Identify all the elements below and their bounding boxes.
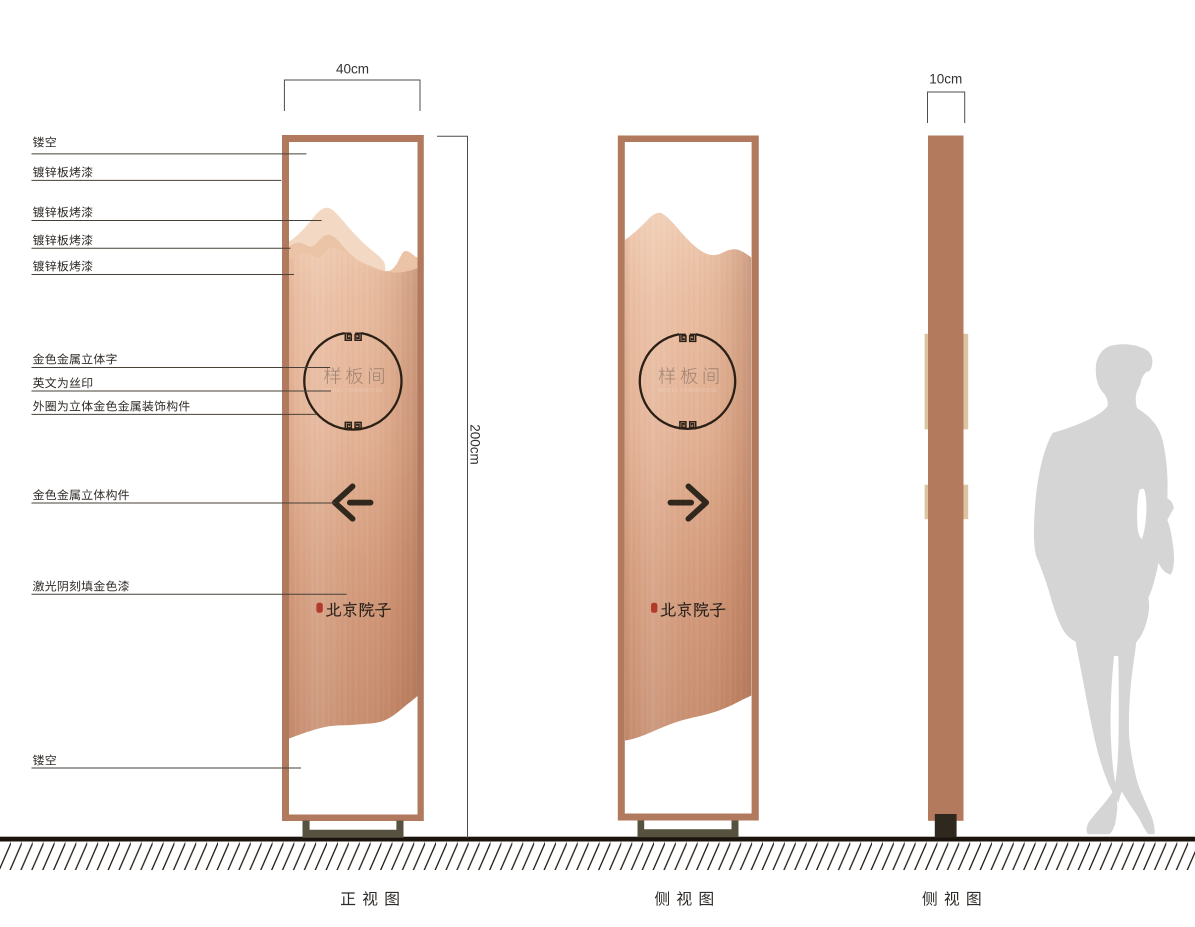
- svg-text:200cm: 200cm: [468, 424, 483, 465]
- svg-text:10cm: 10cm: [929, 72, 962, 87]
- svg-text:MODEL TOWNHOUSE: MODEL TOWNHOUSE: [658, 388, 718, 394]
- svg-text:40cm: 40cm: [336, 62, 369, 77]
- svg-text:MODEL TOWNHOUSE: MODEL TOWNHOUSE: [324, 388, 384, 394]
